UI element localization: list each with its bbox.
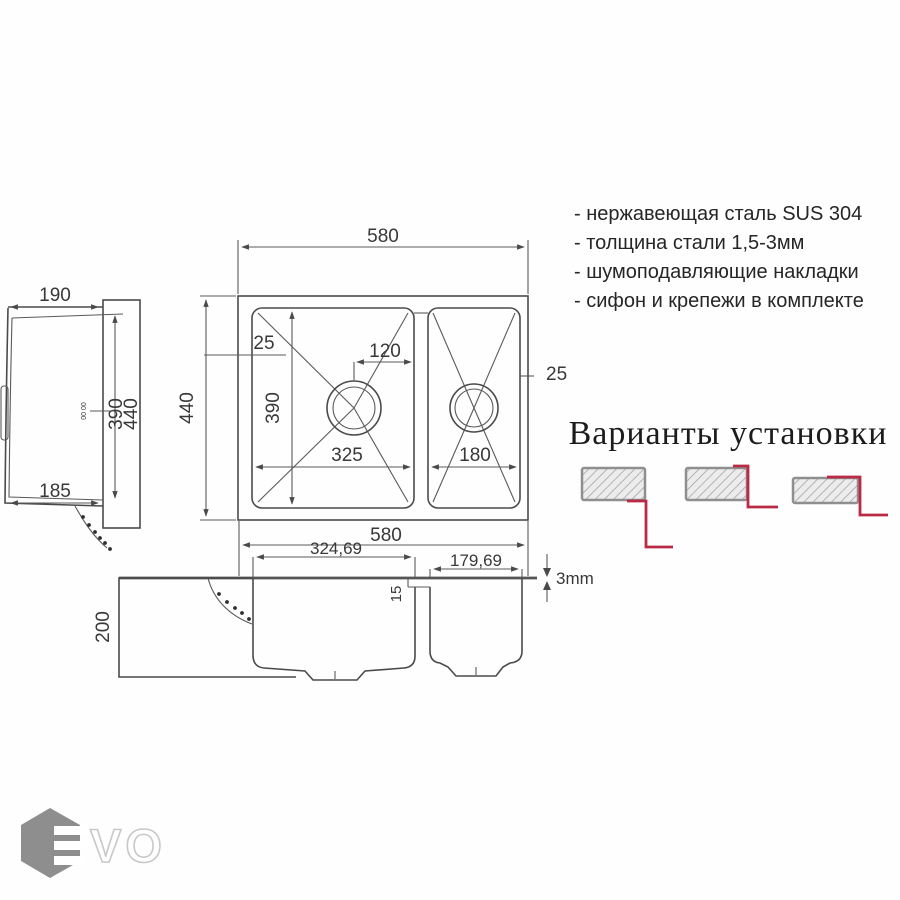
rim-left-label: 25 <box>253 333 274 354</box>
divider-offset-label: 15 <box>388 586 405 603</box>
hose-curve <box>75 506 107 548</box>
hose-dots <box>81 515 112 551</box>
bowl1-section-extensions <box>253 557 415 578</box>
bottom-depth-label: 185 <box>39 481 71 502</box>
rim-thickness-label: 3mm <box>556 569 594 588</box>
countertop-block-1 <box>582 468 645 500</box>
top-width-label: 580 <box>367 226 399 247</box>
spec-item-material: - нержавеющая сталь SUS 304 <box>574 203 862 225</box>
install-option-flushmount <box>793 477 888 515</box>
section-view: 580 324,69 179,69 3mm 200 <box>93 521 594 680</box>
rim-thickness-arrows <box>543 554 551 602</box>
drain-offset-label: 120 <box>369 341 401 362</box>
top-view: 580 440 25 120 390 325 180 25 <box>177 226 567 520</box>
depth-label: 190 <box>39 285 71 306</box>
spec-item-siphon: - сифон и крепежи в комплекте <box>574 290 864 312</box>
sink-edge-red-1 <box>627 501 673 547</box>
section-hose-dots <box>217 592 251 621</box>
bowl2-section-label: 179,69 <box>450 551 502 570</box>
bowl1-width-label: 325 <box>331 445 363 466</box>
logo-vo-text: VO <box>90 819 166 872</box>
installation-options: Варианты установки <box>569 415 888 547</box>
evo-logo: VO <box>21 808 166 878</box>
countertop-block-2 <box>686 468 747 500</box>
install-option-undermount <box>582 468 673 547</box>
cabinet-height-label: 200 <box>93 611 114 643</box>
top-height-label: 440 <box>177 392 198 424</box>
outer-height-label: 440 <box>121 398 142 430</box>
cabinet-outline <box>119 578 296 677</box>
section-hose-curve <box>208 578 252 624</box>
spec-list: - нержавеющая сталь SUS 304 - толщина ст… <box>574 203 864 312</box>
side-profile-outer <box>5 307 103 506</box>
bowl2-section <box>430 578 522 676</box>
installation-title: Варианты установки <box>569 415 888 452</box>
logo-e-bars <box>54 826 86 865</box>
bowl1-section-label: 324,69 <box>310 539 362 558</box>
bowl2-width-label: 180 <box>459 445 491 466</box>
drawing-canvas: 580 440 25 120 390 325 180 25 <box>0 0 900 900</box>
spec-item-thickness: - толщина стали 1,5-3мм <box>574 232 804 254</box>
bowl2-diagonals <box>433 313 515 502</box>
side-view: 190 185 390 440 00 00 <box>1 285 142 551</box>
sink-technical-drawing: 580 440 25 120 390 325 180 25 <box>0 0 900 900</box>
countertop-block-3 <box>793 478 858 503</box>
bowl-depth-label: 390 <box>263 392 284 424</box>
height-extension-lines <box>200 296 236 520</box>
rim-right-label: 25 <box>546 364 567 385</box>
spec-item-noise-pads: - шумоподавляющие накладки <box>574 261 859 283</box>
micro-label: 00 00 <box>81 402 88 420</box>
width-extension-lines <box>238 240 528 294</box>
section-width-label: 580 <box>370 525 402 546</box>
install-option-overmount <box>686 466 778 507</box>
